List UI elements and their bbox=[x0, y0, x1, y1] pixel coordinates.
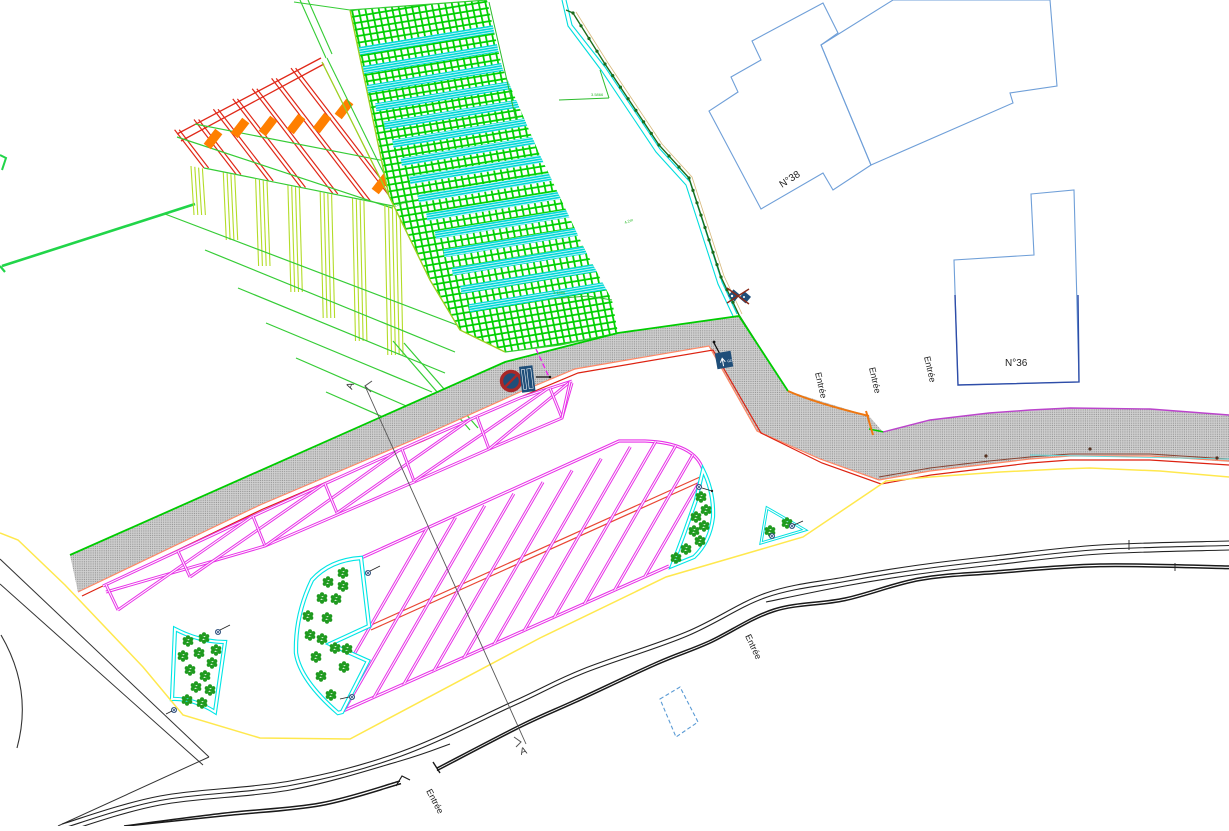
svg-text:N°36: N°36 bbox=[1005, 358, 1028, 369]
svg-text:3.1866: 3.1866 bbox=[553, 290, 566, 295]
svg-text:3.5866: 3.5866 bbox=[591, 92, 604, 97]
